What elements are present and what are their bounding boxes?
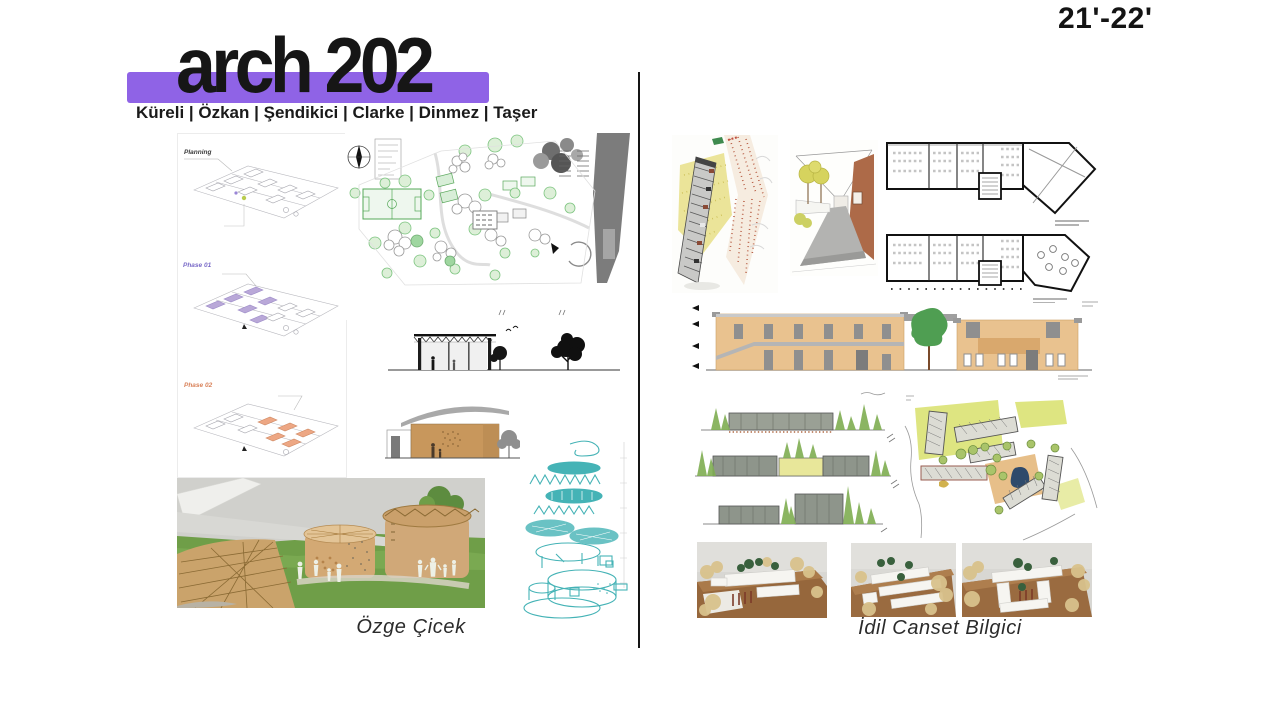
panel-divider [638, 72, 640, 648]
phase-01-axon [194, 284, 338, 336]
aerial-collage-sketch-image [672, 135, 778, 293]
model-photo-1 [697, 542, 827, 618]
model-photo-3 [962, 543, 1092, 617]
sketch-elevations-image [683, 386, 908, 536]
phase-01-label: Phase 01 [183, 262, 212, 269]
upper-floor-plan [887, 143, 1095, 213]
small-tree [490, 346, 507, 370]
year-label: 21'-22' [1058, 2, 1153, 36]
axon-linework [524, 441, 627, 618]
tan-pavilion-elevation-image [385, 396, 520, 476]
render-image [177, 478, 485, 608]
phasing-axonometric-diagrams-image: Planning Phase 01 Phase 02 [178, 134, 346, 472]
ground-floor-plan [887, 235, 1089, 291]
large-tree [551, 333, 585, 370]
building-elevation-image [690, 298, 1102, 382]
left-building-block [712, 312, 908, 370]
instructors-line: Küreli | Özkan | Şendikici | Clarke | Di… [136, 103, 537, 123]
floor-plans-image [883, 133, 1098, 303]
foreground-roof [177, 539, 295, 608]
right-building-block [953, 318, 1082, 370]
teal-exploded-axon-image [512, 438, 630, 622]
course-title: arch 202 [176, 26, 430, 104]
football-field [363, 189, 421, 219]
phasing-diagrams-panel: Planning Phase 01 Phase 02 [177, 133, 347, 478]
sketch-row-2 [695, 438, 899, 488]
right-student-name: İdil Canset Bilgici [780, 617, 1100, 640]
left-student-name: Özge Çicek [296, 616, 526, 639]
corridor-sketch-image [790, 140, 878, 276]
road-shape [593, 133, 630, 283]
sketch-row-1 [701, 404, 895, 442]
presentation-slide: 21'-22' arch 202 Küreli | Özkan | Şendik… [0, 0, 1280, 720]
compass-icon [348, 145, 370, 169]
pavilion-elevation-image [388, 322, 620, 392]
planning-label: Planning [184, 149, 211, 156]
site-plan-image [345, 133, 630, 320]
level-ticks [692, 305, 699, 369]
sketch-row-3 [703, 486, 887, 532]
sketch-site-plan-image [903, 390, 1108, 542]
courtyard-tree [904, 308, 957, 370]
phase-02-label: Phase 02 [184, 382, 213, 389]
grid-building [473, 211, 497, 229]
phase-02-axon [194, 404, 338, 456]
planning-axon [194, 166, 338, 226]
model-photo-2 [851, 543, 956, 617]
